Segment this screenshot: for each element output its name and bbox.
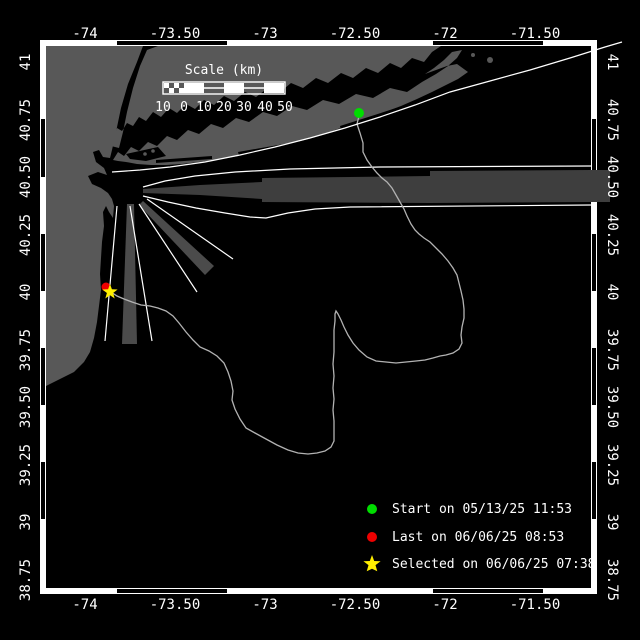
axis-tick-label-lat-left: 40	[18, 284, 34, 301]
drifter-track-map: Scale (km) 10 0 10 20 30 40 50	[0, 0, 640, 640]
axis-tick-label-lon-bottom: -72	[432, 597, 457, 613]
scale-tick-label: 10	[196, 100, 212, 115]
scale-tick-label: 10	[155, 100, 171, 115]
axis-tick-label-lon-top: -73	[252, 26, 277, 42]
axis-tick-label-lat-right: 40.25	[604, 214, 620, 256]
axis-tick-label-lat-left: 39.25	[18, 444, 34, 486]
axis-tick-label-lat-right: 39.50	[604, 386, 620, 428]
axis-tick-label-lat-right: 41	[604, 54, 620, 71]
scale-bar-filled-segment	[184, 83, 204, 93]
axis-tick-label-lon-bottom: -74	[72, 597, 97, 613]
legend-green-dot	[367, 504, 377, 514]
axis-tick-label-lon-top: -74	[72, 26, 97, 42]
axis-tick-label-lat-left: 40.50	[18, 156, 34, 198]
map-canvas: Scale (km) 10 0 10 20 30 40 50	[0, 0, 640, 640]
axis-tick-label-lat-right: 40.75	[604, 99, 620, 141]
axis-tick-label-lat-right: 38.75	[604, 559, 620, 601]
legend-last-label: Last on 06/06/25 08:53	[392, 530, 564, 545]
axis-tick-label-lat-right: 39.25	[604, 444, 620, 486]
marsh-island	[151, 149, 155, 153]
axis-tick-label-lat-right: 39.75	[604, 329, 620, 371]
marsh-island	[143, 152, 147, 156]
axis-tick-label-lat-left: 41	[18, 54, 34, 71]
start-marker[interactable]	[354, 108, 364, 118]
block-island	[487, 57, 493, 63]
legend-start-label: Start on 05/13/25 11:53	[392, 502, 572, 517]
axis-tick-label-lon-top: -73.50	[150, 26, 201, 42]
axis-tick-label-lon-bottom: -73.50	[150, 597, 201, 613]
axis-tick-label-lat-left: 40.25	[18, 214, 34, 256]
axis-tick-label-lon-top: -72	[432, 26, 457, 42]
axis-tick-label-lon-top: -71.50	[510, 26, 561, 42]
axis-tick-label-lat-left: 39.75	[18, 329, 34, 371]
scale-bar-filled-segment	[224, 83, 244, 93]
axis-tick-label-lat-right: 39	[604, 514, 620, 531]
scale-bar-filled-segment	[264, 83, 284, 93]
legend-selected-label: Selected on 06/06/25 07:38	[392, 557, 596, 572]
axis-tick-label-lat-left: 39.50	[18, 386, 34, 428]
scale-tick-label: 20	[216, 100, 232, 115]
scale-tick-label: 0	[180, 100, 188, 115]
axis-tick-label-lon-bottom: -73	[252, 597, 277, 613]
axis-tick-label-lat-right: 40	[604, 284, 620, 301]
axis-tick-label-lat-right: 40.50	[604, 156, 620, 198]
axis-tick-label-lat-left: 40.75	[18, 99, 34, 141]
fishers-island	[471, 53, 475, 57]
scale-tick-label: 40	[257, 100, 273, 115]
map-legend: Start on 05/13/25 11:53 Last on 06/06/25…	[363, 502, 595, 572]
axis-tick-label-lat-left: 38.75	[18, 559, 34, 601]
axis-tick-label-lon-top: -72.50	[330, 26, 381, 42]
axis-tick-label-lon-bottom: -72.50	[330, 597, 381, 613]
scale-tick-label: 50	[277, 100, 293, 115]
axis-tick-label-lat-left: 39	[18, 514, 34, 531]
scale-bar-title: Scale (km)	[185, 63, 263, 78]
scale-tick-label: 30	[236, 100, 252, 115]
legend-red-dot	[367, 532, 377, 542]
axis-tick-label-lon-bottom: -71.50	[510, 597, 561, 613]
